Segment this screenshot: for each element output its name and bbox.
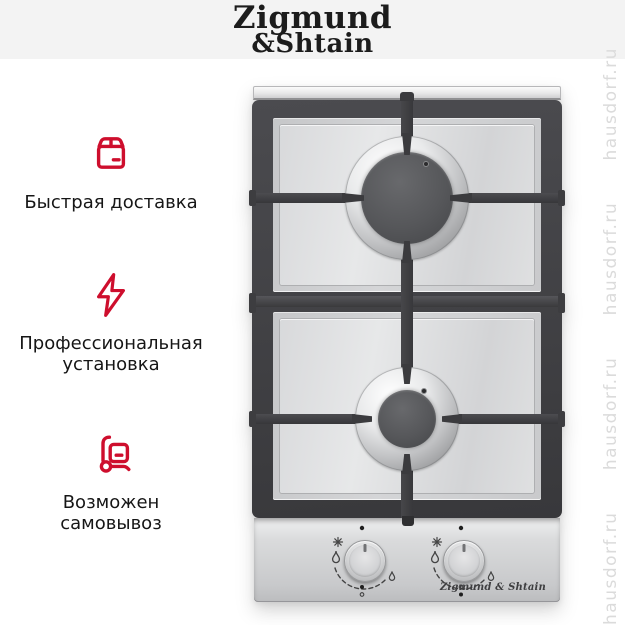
lightning-icon [16,269,206,321]
package-icon [16,128,206,180]
igniter-dot [423,161,429,167]
product-photo-gas-hob: Zigmund & Shtain [252,86,562,602]
feature-label: Возможен самовывоз [41,492,181,534]
pan-support-tip [402,241,412,263]
grate-lug [249,411,256,427]
grate-bottom-tab [402,516,414,526]
grate-lug [558,190,565,206]
feature-label: Быстрая доставка [16,192,206,213]
pan-support-tip [450,193,472,203]
burner-cap-large [361,152,453,244]
grate-lug [558,411,565,427]
knob-dial [443,540,485,582]
pan-support-tip [402,454,412,474]
feature-item-pickup: Возможен самовывоз [16,428,206,534]
burner-knob-left [315,511,415,611]
pan-support-tip [352,414,372,424]
hob-grate-frame [252,100,562,518]
pan-support-tip [442,414,462,424]
feature-label: Профессиональная установка [16,333,206,375]
features-list: Быстрая доставка Профессиональная устано… [16,0,206,625]
grate-lug [249,293,256,313]
panel-brand-logo: Zigmund & Shtain [440,582,546,593]
igniter-dot [421,388,427,394]
grate-lug [558,293,565,313]
burner-large [345,136,469,260]
grate-lug [249,190,256,206]
watermark-text: hausdorf.ru hausdorf.ru hausdorf.ru haus… [601,0,621,625]
knob-dial [344,540,386,582]
control-panel: Zigmund & Shtain [254,518,560,602]
burner-cap-small [378,390,436,448]
feature-item-installation: Профессиональная установка [16,269,206,375]
burner-small [355,367,459,471]
pan-support-tip [402,364,412,384]
page-background: Zigmund &Shtain Быстрая доставка Професс… [0,0,625,625]
burner-knob-right [414,511,514,611]
grate-top-tab [400,92,414,101]
handtruck-icon [16,428,206,480]
feature-item-delivery: Быстрая доставка [16,128,206,213]
